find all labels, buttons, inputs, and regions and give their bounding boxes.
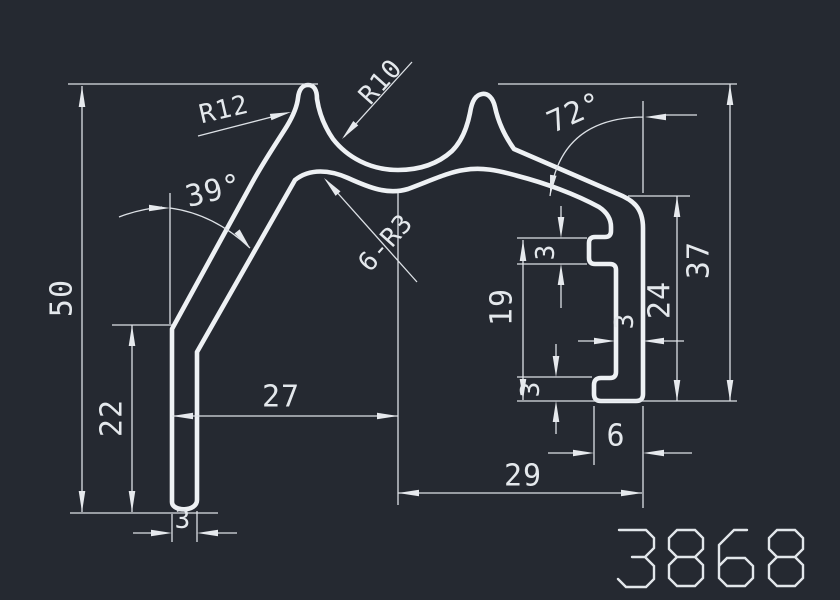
dim-19-label: 19 xyxy=(485,288,520,326)
dim-3-bottom-label: 3 xyxy=(516,381,546,398)
cad-drawing-canvas: 50 22 27 3 29 19 3 3 3 24 37 6 39° 72° R… xyxy=(0,0,840,600)
dim-29-label: 29 xyxy=(504,459,542,494)
cad-drawing: 50 22 27 3 29 19 3 3 3 24 37 6 39° 72° R… xyxy=(0,0,840,600)
dim-22-label: 22 xyxy=(95,399,130,437)
dim-24-label: 24 xyxy=(643,281,678,319)
dim-6-label: 6 xyxy=(606,419,625,454)
dim-50-label: 50 xyxy=(45,279,80,317)
dim-27-label: 27 xyxy=(262,380,300,415)
drawing-background xyxy=(0,0,840,600)
dim-3-wall-label: 3 xyxy=(610,313,640,330)
part-number-glyphs: 3868 xyxy=(618,523,803,593)
dim-3-leg-label: 3 xyxy=(175,505,192,535)
dim-37-label: 37 xyxy=(682,241,717,279)
dim-3-top-label: 3 xyxy=(531,244,561,261)
